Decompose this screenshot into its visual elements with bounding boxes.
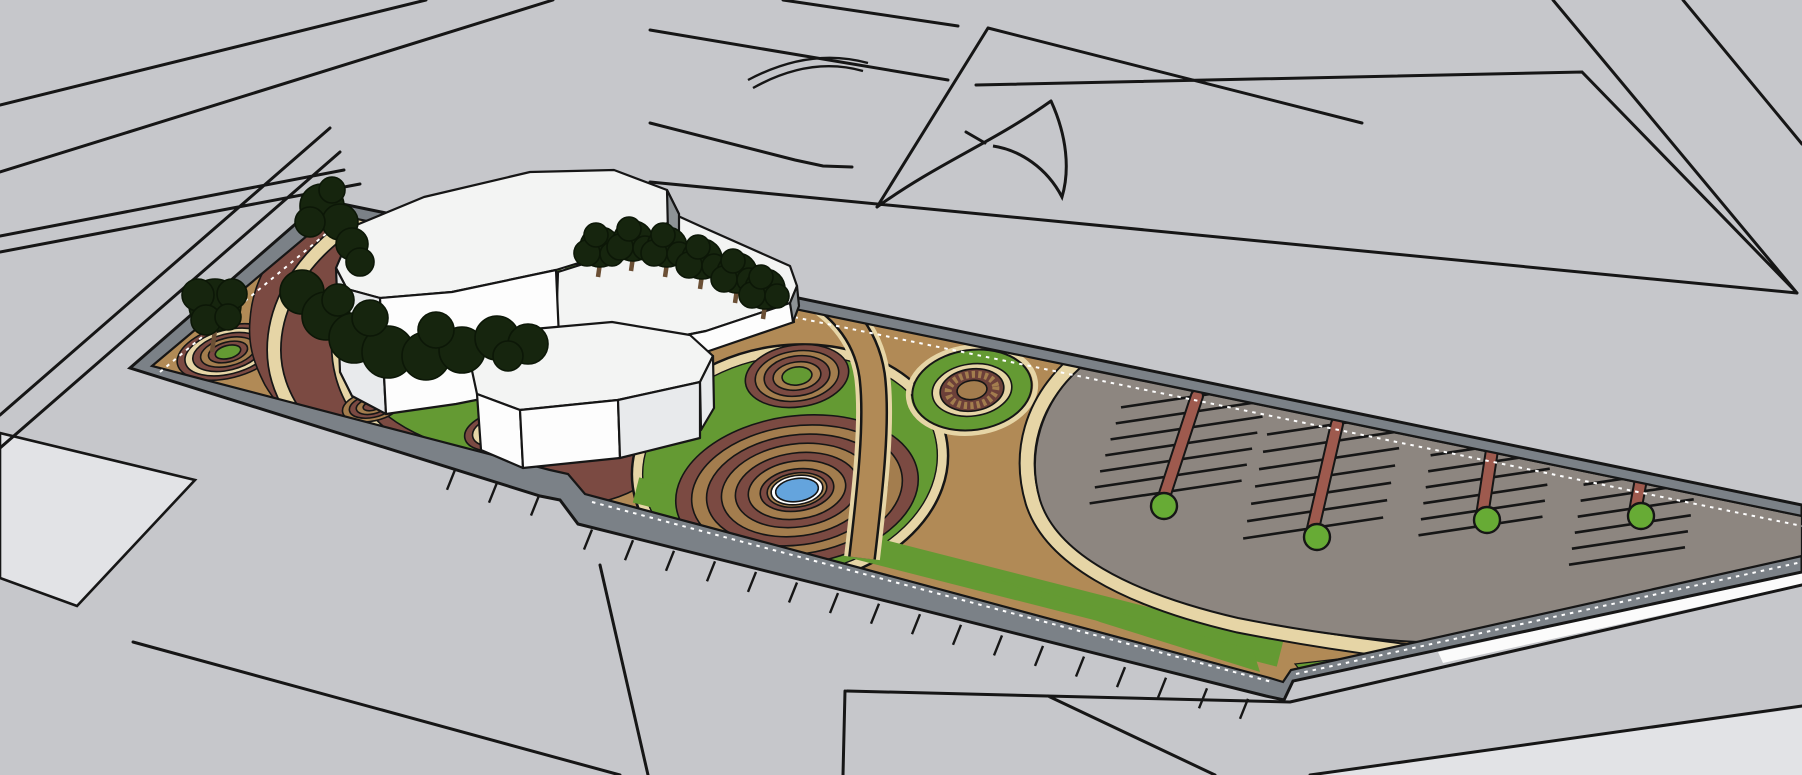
tree-canopy	[584, 223, 608, 247]
viewport-stage	[0, 0, 1802, 775]
parking-end-tree	[1474, 507, 1500, 533]
model-viewport[interactable]	[0, 0, 1802, 775]
tree-canopy	[322, 284, 354, 316]
tree-canopy	[749, 265, 773, 289]
tree-canopy	[346, 248, 374, 276]
tree-canopy	[319, 177, 345, 203]
tree-canopy	[418, 312, 454, 348]
tree-canopy	[651, 223, 675, 247]
parking-end-tree	[1151, 493, 1177, 519]
parking-end-tree	[1628, 503, 1654, 529]
tree-canopy	[721, 249, 745, 273]
tree-canopy	[352, 300, 388, 336]
tree-canopy	[493, 341, 523, 371]
parking-end-tree	[1304, 524, 1330, 550]
tree-canopy	[215, 304, 241, 330]
tree-canopy	[617, 217, 641, 241]
tree-canopy	[765, 284, 789, 308]
tree-canopy	[295, 207, 325, 237]
tree-canopy	[686, 235, 710, 259]
